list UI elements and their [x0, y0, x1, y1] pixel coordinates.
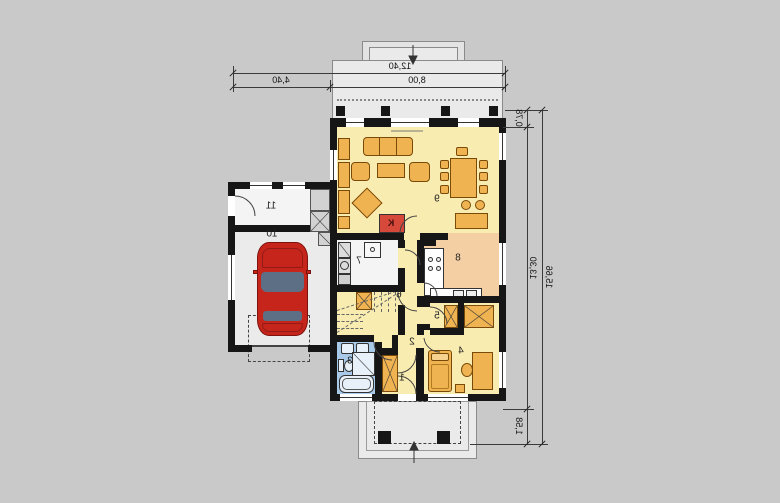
- interior-wall: [337, 233, 404, 240]
- shower: [352, 352, 375, 376]
- bar-stool: [475, 200, 485, 210]
- porch-column: [378, 431, 391, 444]
- bedroom-wardrobe: [464, 305, 494, 328]
- interior-wall: [458, 303, 464, 335]
- bathroom-window: [340, 394, 372, 401]
- car-mirror-left: [253, 270, 258, 274]
- kitchen-chimney: [424, 233, 436, 246]
- wall-unit: [338, 216, 350, 229]
- dining-chair: [479, 172, 488, 181]
- laundry-appliance: [338, 242, 351, 258]
- dimension-extension-line: [503, 409, 534, 410]
- terrace-slab: [332, 60, 503, 127]
- room-label-9: 9: [434, 194, 440, 205]
- wall-unit: [338, 190, 350, 214]
- bedroom-window: [428, 394, 468, 401]
- dimension-extension-line: [503, 127, 534, 128]
- terrace-edge-dotted-line: [337, 99, 498, 101]
- stair-tread: [374, 292, 375, 312]
- room-label-3: 3: [347, 356, 353, 367]
- dimension-line-total-width: [233, 73, 505, 74]
- living-room-window: [499, 133, 506, 160]
- interior-wall: [416, 348, 424, 394]
- car-trunk-line: [262, 323, 303, 332]
- dining-chair: [440, 160, 449, 169]
- interior-wall: [337, 335, 374, 342]
- room-label-4: 4: [458, 346, 464, 357]
- bed-blanket-line: [431, 364, 449, 389]
- car-windshield: [261, 272, 304, 292]
- car-mirror-right: [306, 270, 311, 274]
- dimension-line-total-depth: [542, 110, 543, 444]
- wall-unit: [338, 138, 350, 160]
- dimension-porch-depth: 1,58: [514, 417, 524, 435]
- fireplace-label: K: [388, 218, 395, 228]
- armchair: [409, 162, 430, 182]
- stove-burner: [428, 257, 433, 262]
- dimension-garage-width: 4,40: [272, 75, 290, 85]
- desk: [472, 352, 493, 390]
- living-room-window: [458, 118, 479, 127]
- room-label-10: 10: [266, 229, 277, 240]
- terrace-column: [336, 106, 345, 116]
- interior-wall: [375, 342, 382, 394]
- interior-wall: [417, 303, 430, 307]
- stove-burner: [436, 257, 441, 262]
- chimney-block: [310, 189, 330, 211]
- bar-stool: [461, 200, 471, 210]
- terrace-column: [489, 106, 498, 116]
- interior-wall: [430, 328, 458, 335]
- dimension-house-depth: 13,30: [528, 257, 538, 280]
- dimension-total-width: 12,40: [389, 61, 412, 71]
- bedroom-window: [499, 352, 506, 388]
- dining-chair: [440, 185, 449, 194]
- coffee-table: [377, 163, 405, 178]
- kitchen-window: [499, 243, 506, 285]
- room11-window: [283, 182, 305, 189]
- interior-wall: [417, 296, 499, 303]
- chimney-block: [310, 211, 330, 232]
- room-label-8: 8: [455, 253, 461, 264]
- garage-wall-bottom-left: [228, 345, 252, 352]
- interior-wall: [417, 240, 424, 283]
- entrance-door-opening: [398, 394, 416, 401]
- porch-column: [437, 431, 450, 444]
- stove-burner: [436, 266, 441, 271]
- living-room-side-window: [330, 150, 337, 180]
- stair-tread: [388, 292, 389, 312]
- nightstand: [455, 384, 465, 393]
- terrace-glass-door: [391, 118, 429, 127]
- interior-wall: [337, 285, 398, 292]
- dimension-terrace-depth: 0,78: [514, 109, 524, 127]
- room-label-6: 6: [396, 290, 402, 301]
- terrace-column: [381, 106, 390, 116]
- dimension-line-split-width: [233, 87, 505, 88]
- desk-chair: [461, 363, 473, 377]
- dimension-extension-line: [470, 444, 548, 445]
- garage-door-line: [252, 345, 308, 347]
- floor-plan: 1 2 3 4 5 6 7 8 9 10 11 K 12,40 4,40 8,0…: [0, 0, 780, 503]
- vestibule-wardrobe: [382, 355, 398, 392]
- room11-window: [250, 182, 272, 189]
- room-label-2: 2: [409, 337, 415, 348]
- wall-unit: [338, 162, 350, 188]
- bar-counter: [455, 213, 488, 229]
- interior-wall: [417, 330, 424, 335]
- sofa: [363, 137, 413, 156]
- room11-door-opening: [228, 196, 235, 216]
- interior-wall: [398, 268, 405, 292]
- room-label-11: 11: [266, 201, 276, 212]
- utility-cabinet: [338, 274, 351, 285]
- interior-wall: [382, 348, 398, 355]
- room-label-1: 1: [399, 373, 405, 384]
- room-label-7: 7: [356, 256, 362, 267]
- armchair: [351, 162, 370, 181]
- room-label-5: 5: [434, 311, 440, 322]
- dining-chair: [479, 185, 488, 194]
- dining-chair: [479, 160, 488, 169]
- garage-window: [228, 255, 235, 300]
- bathtub-inner-line: [342, 378, 371, 390]
- bed-pillow: [431, 353, 449, 361]
- dining-table: [450, 158, 477, 198]
- dimension-house-width: 8,00: [408, 75, 426, 85]
- pantry-wardrobe: [444, 305, 458, 328]
- car-hood-line: [262, 248, 303, 268]
- car-rear-window: [263, 311, 302, 321]
- washing-machine-door: [370, 247, 375, 252]
- stair-tread: [337, 314, 363, 315]
- dimension-total-depth: 15,66: [544, 266, 554, 289]
- living-room-window: [346, 118, 364, 127]
- utility-sink-basin: [340, 261, 349, 270]
- interior-wall: [398, 305, 405, 335]
- terrace-column: [441, 106, 450, 116]
- dining-chair: [456, 147, 468, 156]
- dining-chair: [440, 172, 449, 181]
- interior-wall: [398, 240, 405, 248]
- stove-burner: [428, 266, 433, 271]
